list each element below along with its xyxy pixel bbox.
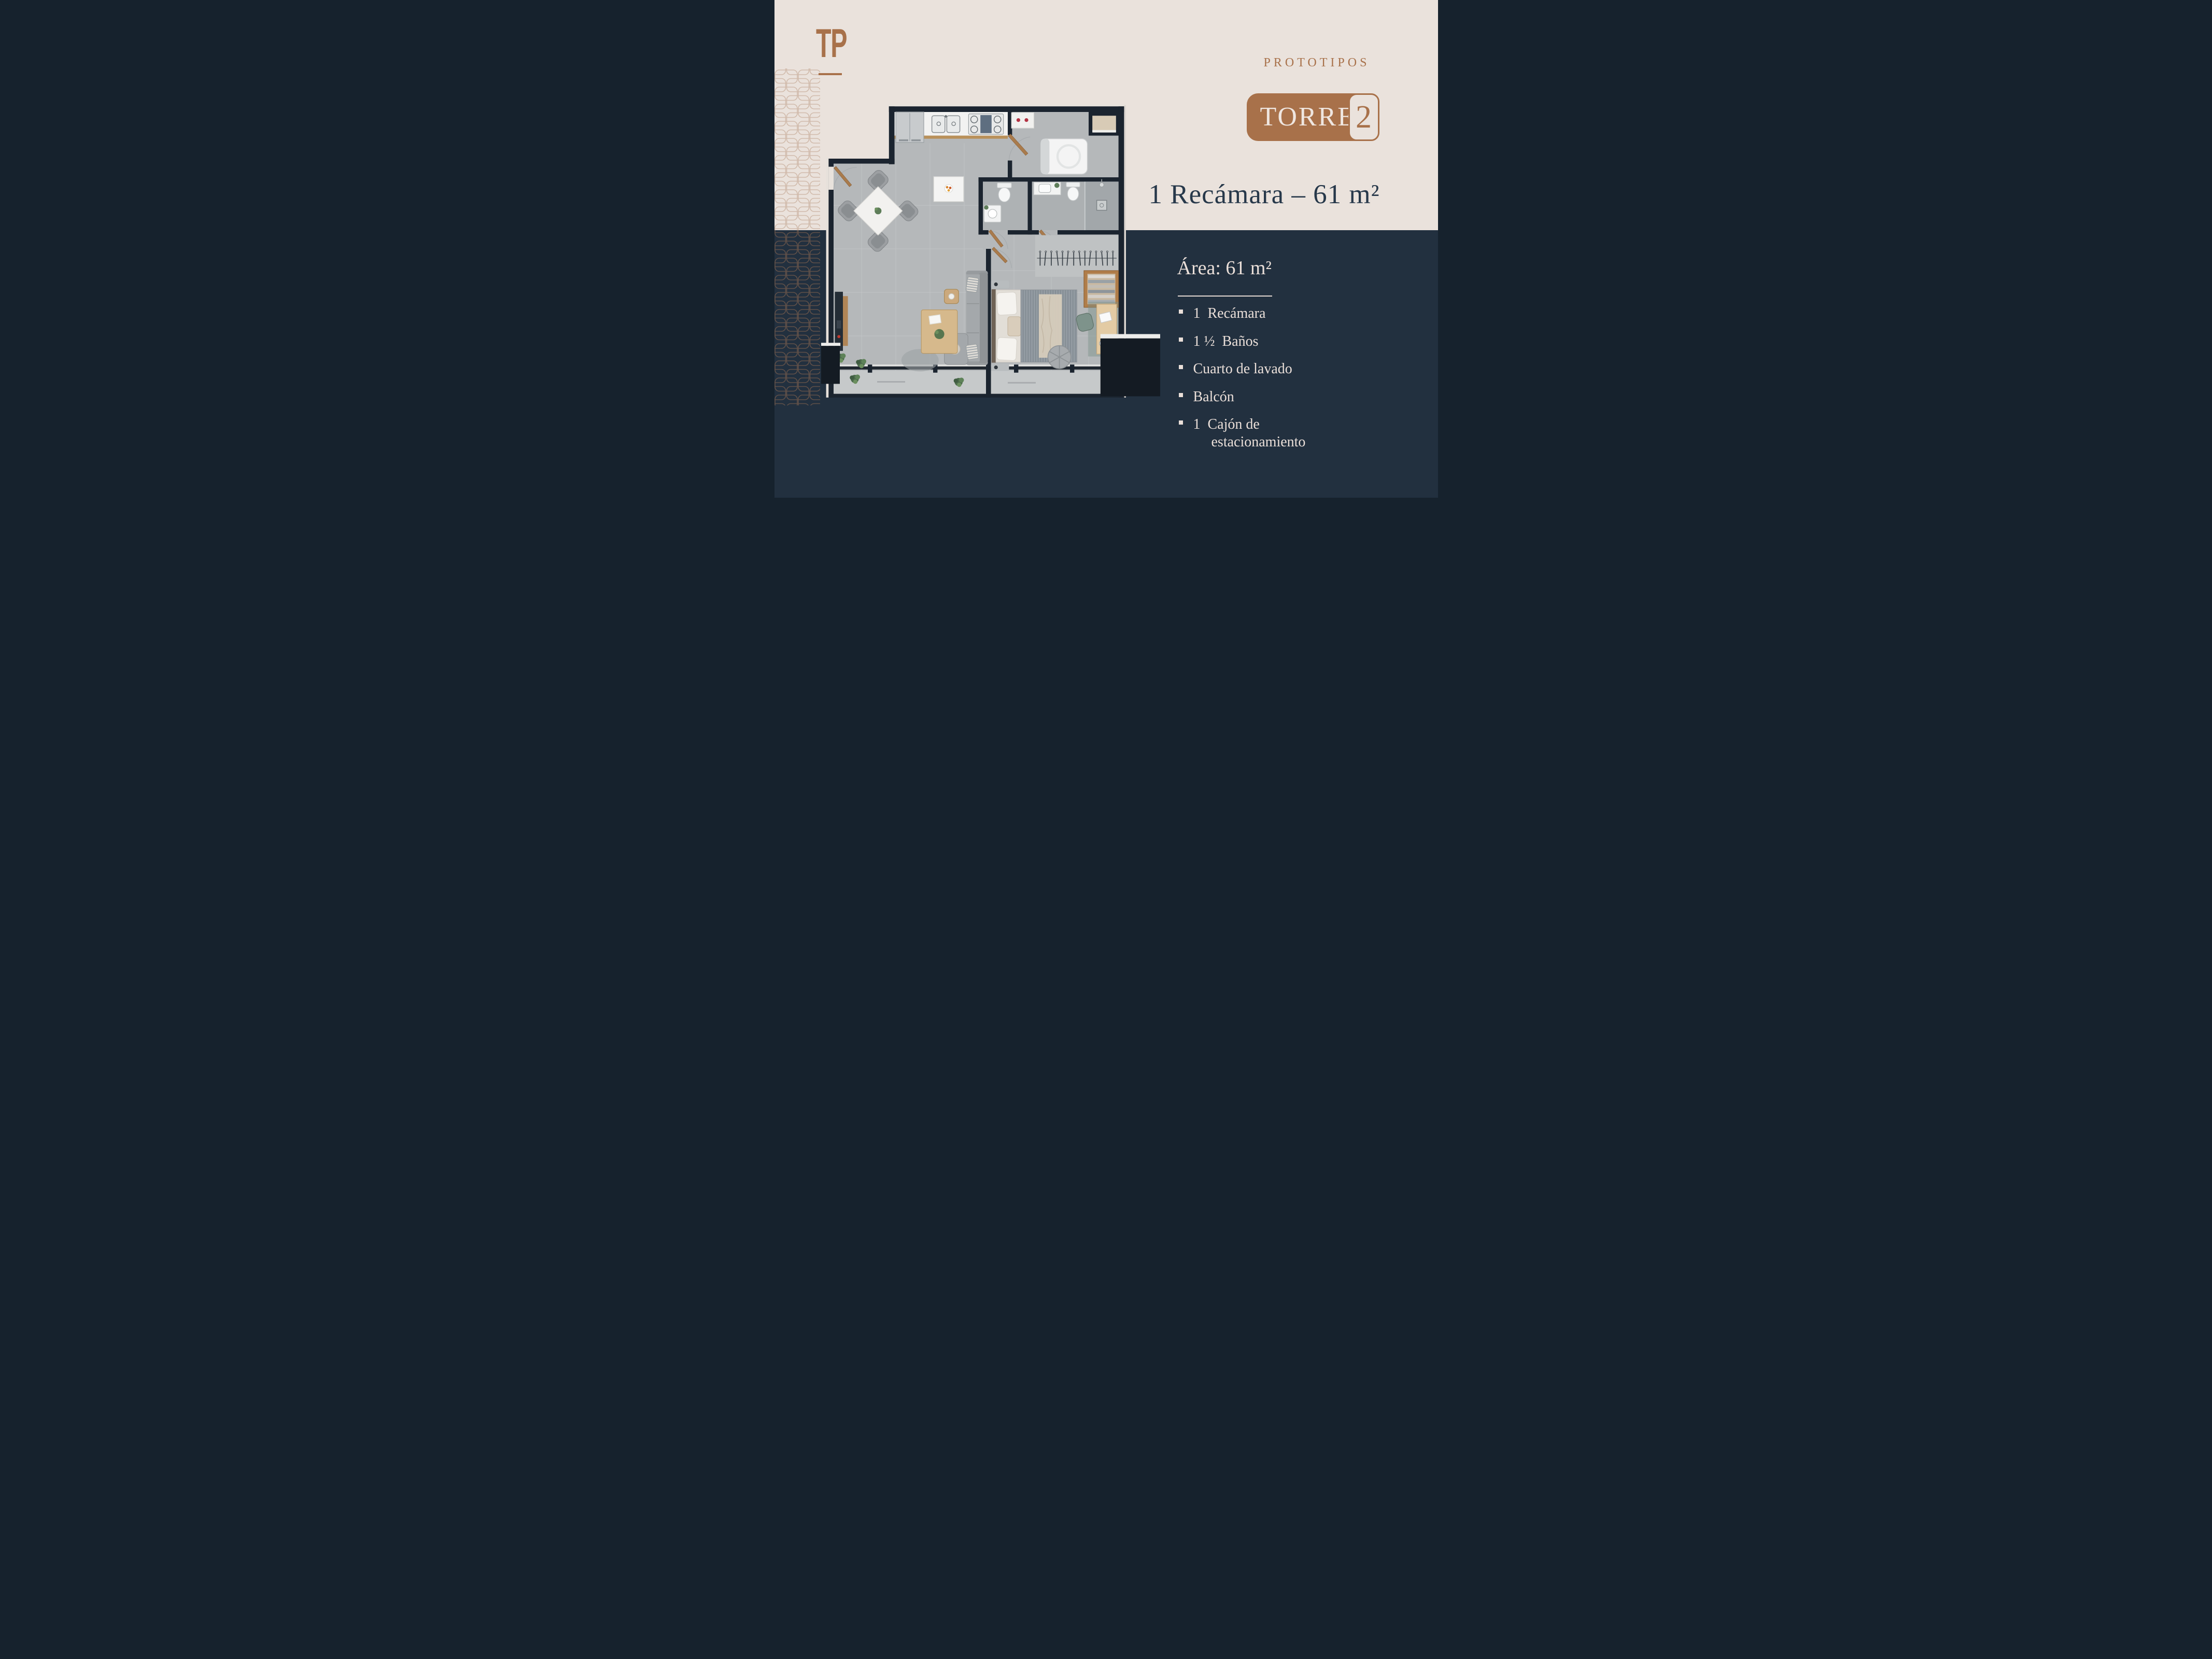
unit-headline: 1 Recámara – 61 m² xyxy=(1149,181,1392,208)
stove xyxy=(968,114,1003,135)
list-item: Balcón xyxy=(1179,388,1306,406)
bullet-square-icon xyxy=(1179,338,1183,342)
sink xyxy=(984,205,1001,222)
tp-logo: TP xyxy=(816,23,847,63)
bullet-square-icon xyxy=(1179,393,1183,397)
feature-list: 1 Recámara 1 ½ Baños Cuarto de lavado Ba… xyxy=(1179,305,1306,461)
slide: { "brand": { "logo": "TP" }, "header": {… xyxy=(774,0,1438,498)
side-table xyxy=(944,289,959,304)
balcony xyxy=(831,364,1121,393)
feature-label: 1 Recámara xyxy=(1193,305,1266,321)
feature-label: Balcón xyxy=(1193,389,1234,405)
torre-number-box: 2 xyxy=(1348,93,1379,141)
area-underline xyxy=(1178,296,1272,297)
toilet xyxy=(1066,182,1079,201)
feature-label: 1 ½ Baños xyxy=(1193,333,1259,349)
coffee-table xyxy=(921,310,957,354)
pouf xyxy=(1048,346,1070,369)
feature-label: Cuarto de lavado xyxy=(1193,361,1292,377)
exterior-box-right xyxy=(1100,334,1160,396)
prototipos-label: PROTOTIPOS xyxy=(1264,56,1383,70)
toilet xyxy=(997,183,1011,202)
fridge xyxy=(896,112,924,143)
utility-sink xyxy=(1011,113,1034,128)
washing-machine xyxy=(1040,139,1087,174)
tv-console xyxy=(835,292,848,351)
tp-logo-underline xyxy=(819,73,842,75)
feature-label: 1 Cajón de estacionamiento xyxy=(1193,416,1306,450)
laundry-cabinet xyxy=(1089,112,1120,136)
torre-label: TORRE xyxy=(1247,104,1356,131)
kitchen-island xyxy=(934,177,964,202)
torre-number: 2 xyxy=(1356,101,1372,133)
floor-plan xyxy=(821,103,1163,401)
area-title: Área: 61 m² xyxy=(1177,258,1272,279)
list-item: 1 Cajón de estacionamiento xyxy=(1179,416,1306,451)
bullet-square-icon xyxy=(1179,310,1183,314)
exterior-box-left xyxy=(821,343,840,384)
list-item: 1 ½ Baños xyxy=(1179,333,1306,350)
vanity-sink xyxy=(1034,182,1061,195)
bullet-square-icon xyxy=(1179,420,1183,425)
bullet-square-icon xyxy=(1179,365,1183,369)
torre-badge: TORRE 2 xyxy=(1247,93,1379,141)
list-item: 1 Recámara xyxy=(1179,305,1306,322)
decor-pattern xyxy=(774,68,820,405)
list-item: Cuarto de lavado xyxy=(1179,360,1306,378)
